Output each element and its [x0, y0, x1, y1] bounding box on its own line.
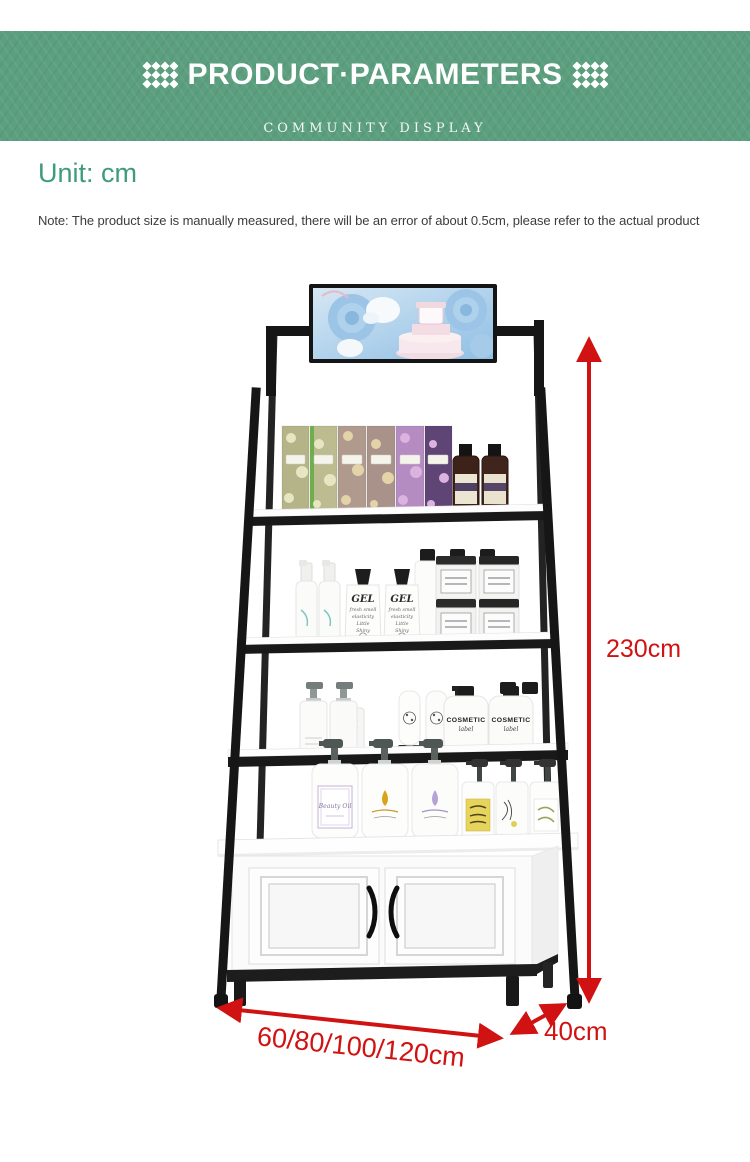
banner: PRODUCT·PARAMETERS COMMUNIT — [0, 31, 750, 141]
gel-label-line: Little — [356, 621, 370, 627]
product-figure: GEL fresh smell elasticity Little Shiny … — [0, 270, 750, 1070]
banner-subtitle: COMMUNITY DISPLAY — [263, 121, 486, 136]
shelf-tier-2 — [237, 632, 558, 654]
width-label: 60/80/100/120cm — [256, 1021, 467, 1070]
banner-title: PRODUCT·PARAMETERS — [187, 58, 562, 92]
cosmetic-label-sub: label — [504, 726, 519, 733]
depth-label: 40cm — [544, 1016, 608, 1046]
gel-label-line: Little — [395, 621, 409, 627]
ladder-foot — [567, 994, 582, 1009]
ladder-foot — [214, 994, 228, 1008]
dot-grid-icon — [142, 61, 178, 89]
cabinet-door-right — [385, 868, 515, 964]
gel-label-line: fresh smell — [388, 607, 416, 613]
unit-label: Unit: cm — [38, 158, 137, 189]
cosmetic-label-title: COSMETIC — [446, 717, 485, 724]
banner-title-row: PRODUCT·PARAMETERS — [142, 38, 607, 112]
product-parameters-page: PRODUCT·PARAMETERS COMMUNIT — [0, 0, 750, 1162]
gel-label-line: elasticity — [391, 614, 413, 620]
large-pump-bottles: Beauty Oil — [312, 739, 458, 838]
gel-label-line: fresh smell — [349, 607, 377, 613]
cosmetic-label-title: COSMETIC — [491, 717, 530, 724]
gel-bottles: GEL fresh smell elasticity Little Shiny … — [345, 569, 420, 641]
spray-bottles — [296, 560, 340, 641]
measurement-note: Note: The product size is manually measu… — [38, 213, 699, 228]
small-pump-bottles — [462, 759, 562, 838]
cosmetic-label-sub: label — [459, 726, 474, 733]
gel-label-title: GEL — [351, 594, 374, 605]
cosmetic-bottles: COSMETIC label COSMETIC label — [444, 682, 538, 753]
tier2-products: GEL fresh smell elasticity Little Shiny … — [296, 549, 519, 641]
height-label: 230cm — [606, 635, 681, 663]
gel-label-line: elasticity — [352, 614, 374, 620]
gel-label-title: GEL — [390, 594, 413, 605]
cabinet — [218, 833, 578, 1006]
beauty-oil-label: Beauty Oil — [318, 803, 352, 810]
amber-bottles — [453, 444, 508, 513]
tier1-products — [282, 426, 508, 514]
dot-grid-icon — [572, 61, 608, 89]
cabinet-door-left — [249, 868, 379, 964]
sign-board — [309, 284, 497, 363]
